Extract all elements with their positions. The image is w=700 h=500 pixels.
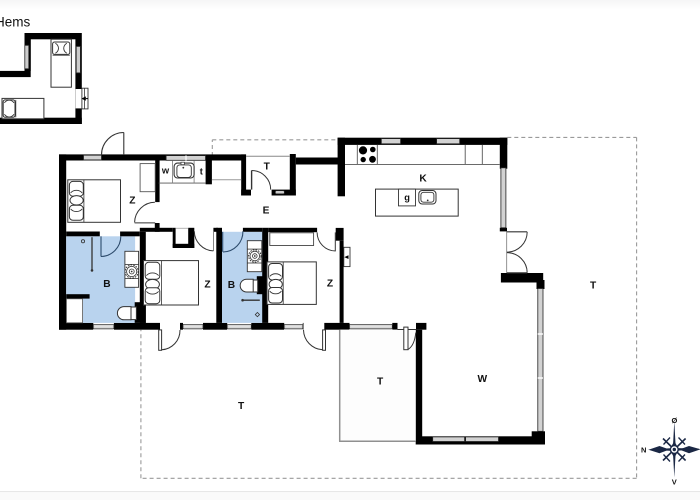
- svg-text:V: V: [672, 478, 677, 487]
- svg-text:Z: Z: [327, 278, 333, 289]
- svg-text:T: T: [238, 401, 245, 412]
- svg-text:K: K: [419, 173, 427, 184]
- svg-text:N: N: [641, 446, 646, 455]
- svg-text:T: T: [377, 376, 384, 387]
- svg-text:B: B: [103, 279, 110, 290]
- svg-text:t: t: [200, 167, 203, 177]
- svg-text:w: w: [161, 165, 170, 175]
- svg-text:Ø: Ø: [672, 416, 678, 425]
- svg-text:Z: Z: [129, 196, 135, 207]
- svg-text:T: T: [264, 161, 271, 172]
- svg-text:B: B: [228, 280, 235, 291]
- svg-text:E: E: [263, 206, 270, 217]
- svg-text:W: W: [478, 374, 488, 385]
- svg-text:Hems: Hems: [0, 15, 31, 30]
- svg-text:T: T: [590, 281, 597, 292]
- svg-text:g: g: [404, 193, 410, 203]
- svg-text:Z: Z: [204, 279, 210, 290]
